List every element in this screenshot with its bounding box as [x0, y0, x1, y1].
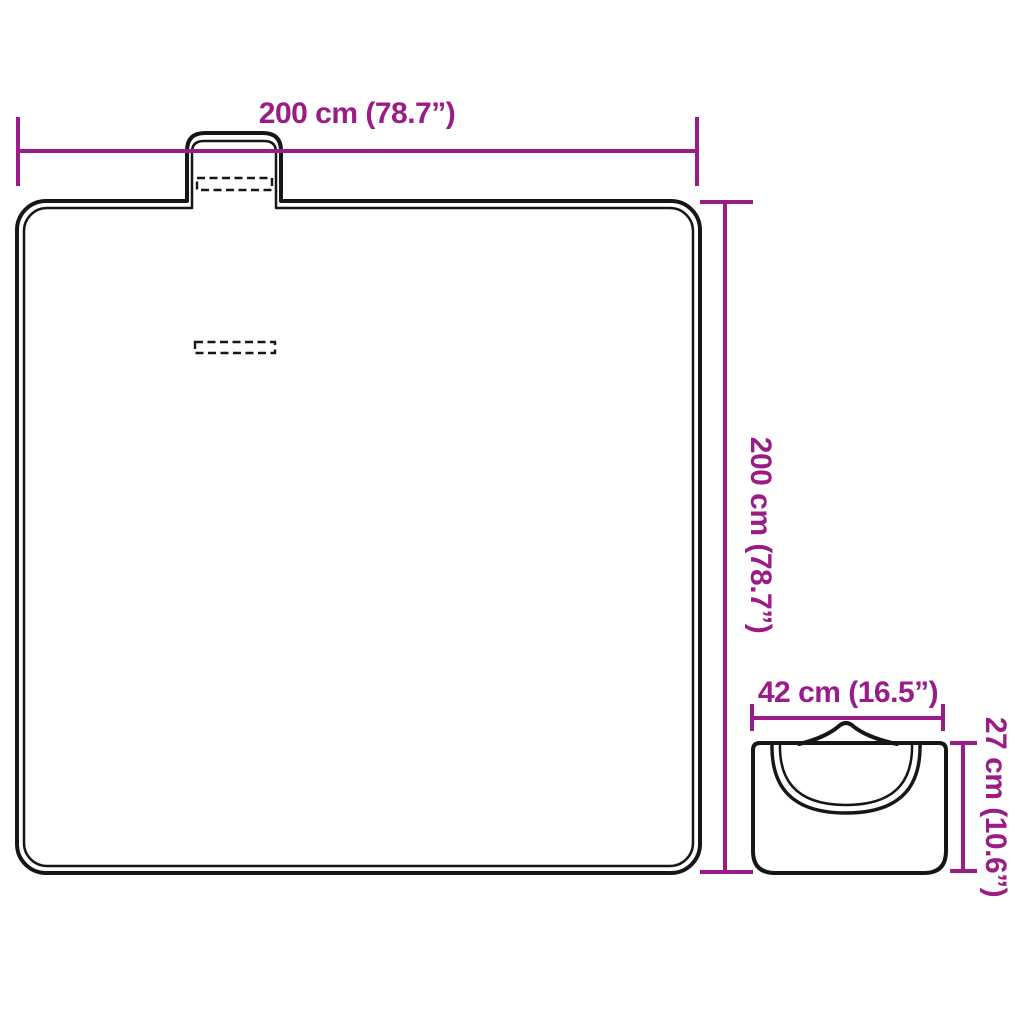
- folded-blanket-flap-outer: [772, 743, 920, 813]
- blanket-outline-outer: [17, 133, 700, 873]
- diagram-artwork: [0, 0, 1024, 1024]
- fastener-strip-tab: [197, 178, 272, 190]
- width-dimension-label: 200 cm (78.7”): [259, 99, 455, 129]
- height-dimension-label: 200 cm (78.7”): [745, 437, 775, 633]
- folded-height-dimension-label: 27 cm (10.6”): [980, 717, 1010, 897]
- folded-width-dimension-label: 42 cm (16.5”): [758, 678, 938, 708]
- unfolded-blanket: [17, 133, 700, 873]
- fastener-strip-surface: [195, 342, 275, 353]
- folded-blanket: [753, 723, 946, 873]
- folded-blanket-flap-inner: [780, 743, 912, 805]
- blanket-outline-inner: [24, 141, 693, 866]
- dimension-diagram: 200 cm (78.7”) 200 cm (78.7”) 42 cm (16.…: [0, 0, 1024, 1024]
- folded-height-dimension-line: [950, 743, 977, 871]
- folded-blanket-handle: [799, 723, 897, 744]
